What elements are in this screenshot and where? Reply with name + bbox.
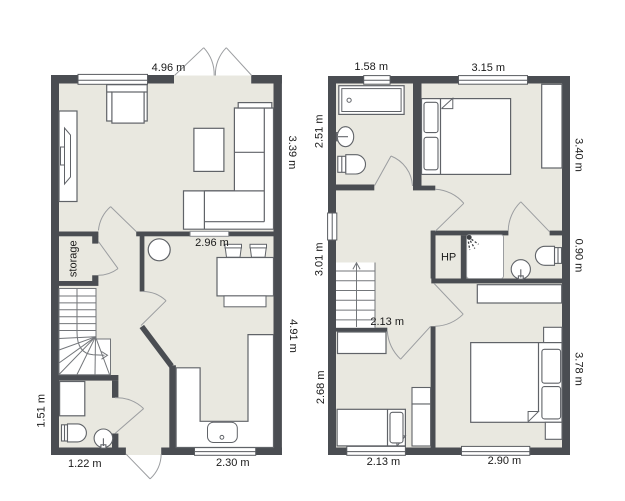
svg-text:3.01 m: 3.01 m [314,242,326,276]
svg-text:2.90 m: 2.90 m [488,455,522,467]
svg-text:2.96 m: 2.96 m [195,237,229,249]
svg-text:3.39 m: 3.39 m [286,136,298,170]
svg-text:2.13 m: 2.13 m [370,316,404,328]
svg-text:HP: HP [441,251,456,263]
svg-text:4.91 m: 4.91 m [287,319,299,353]
svg-text:2.51 m: 2.51 m [314,114,326,148]
svg-text:1.51 m: 1.51 m [36,394,48,428]
svg-text:2.13 m: 2.13 m [367,456,401,468]
svg-text:1.22 m: 1.22 m [68,458,102,470]
svg-text:3.40 m: 3.40 m [573,138,585,172]
svg-text:4.96 m: 4.96 m [152,62,186,74]
svg-text:3.78 m: 3.78 m [573,352,585,386]
svg-text:2.30 m: 2.30 m [216,457,250,469]
svg-text:1.58 m: 1.58 m [354,61,388,73]
svg-text:3.15 m: 3.15 m [471,62,505,74]
svg-text:2.68 m: 2.68 m [315,370,327,404]
svg-text:0.90 m: 0.90 m [573,239,585,273]
svg-text:storage: storage [68,240,80,277]
